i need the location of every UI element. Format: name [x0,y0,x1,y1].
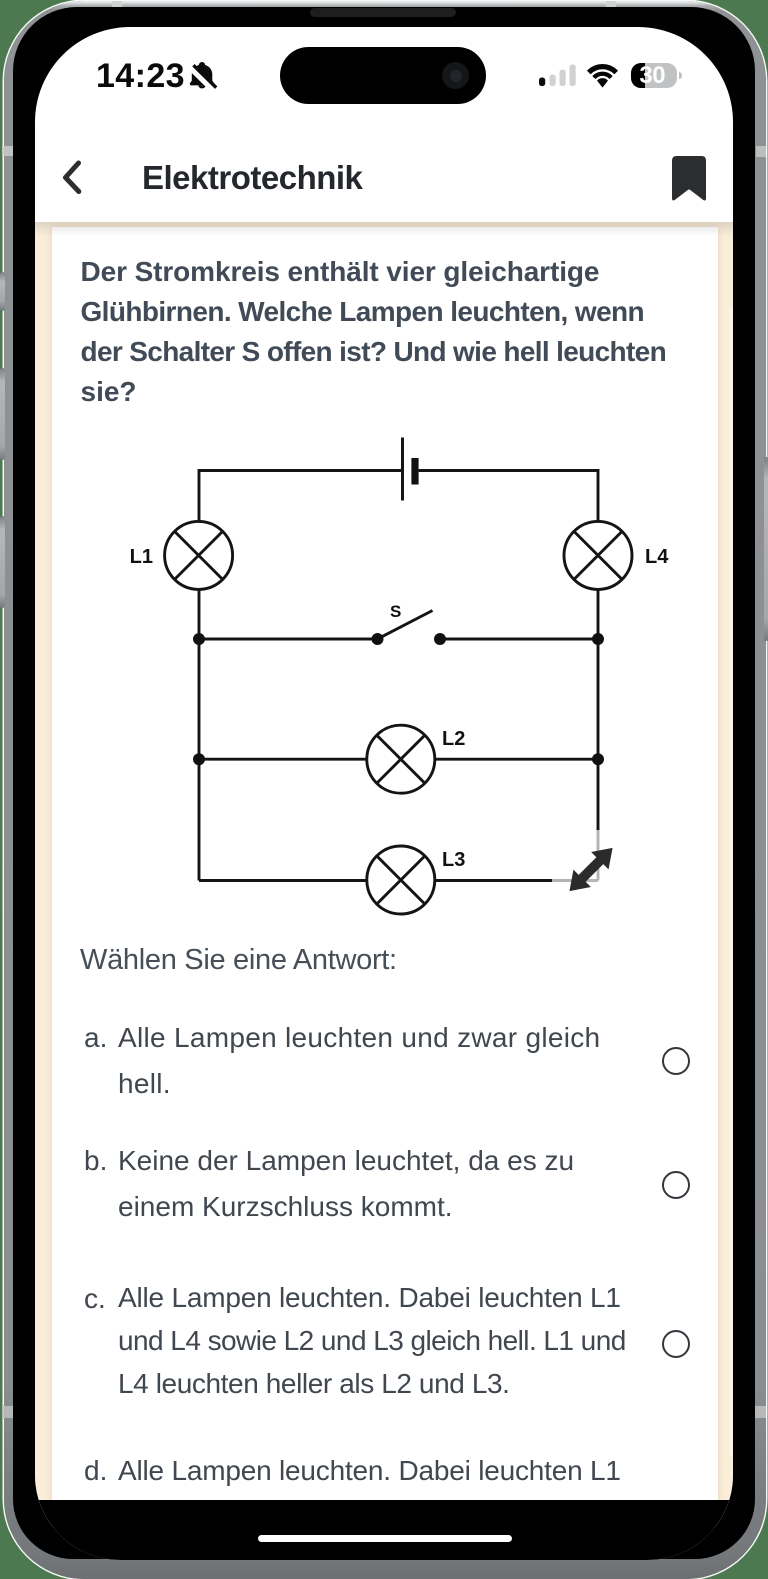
svg-text:L2: L2 [442,728,465,750]
svg-text:L3: L3 [442,849,465,871]
svg-text:S: S [390,602,401,621]
svg-text:L4: L4 [645,546,669,568]
svg-text:L1: L1 [130,546,153,568]
